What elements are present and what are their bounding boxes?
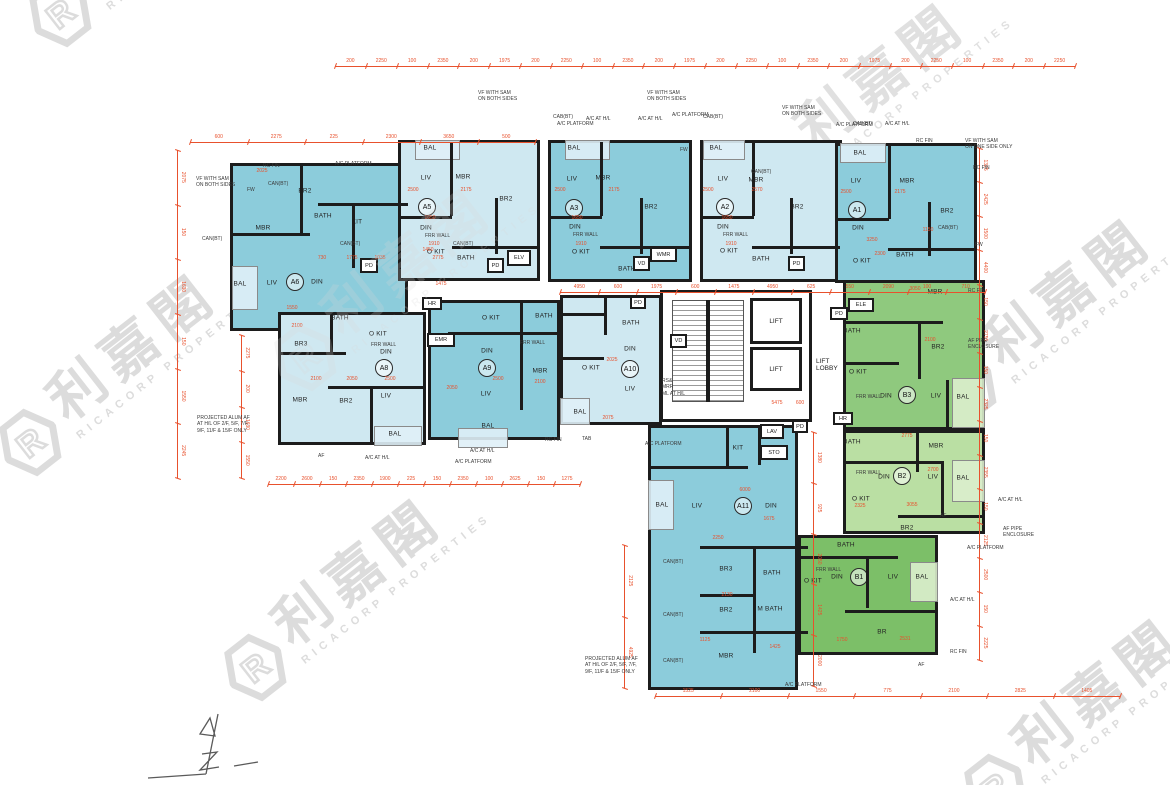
- dimension-value: 1035: [374, 255, 385, 261]
- room-label: MBR: [899, 178, 914, 185]
- room-label: BATH: [535, 313, 553, 320]
- dimension-value: 2100: [749, 688, 760, 694]
- service-box-pd: PD: [487, 258, 504, 273]
- dimension-value: 2275: [271, 134, 282, 140]
- room-label: MBR: [718, 653, 733, 660]
- dimension-value: 200: [346, 58, 354, 64]
- dimension-value: 200: [840, 58, 848, 64]
- dimension-value: 1550: [816, 688, 827, 694]
- dimension-tick: [239, 441, 245, 444]
- service-box-sto: STO: [760, 445, 788, 460]
- room-label: DIN: [624, 346, 636, 353]
- service-box-pd: PD: [630, 296, 646, 309]
- dimension-value: 600: [614, 284, 622, 290]
- dimension-value: 2500: [384, 376, 395, 382]
- room-label: BAL: [574, 409, 587, 416]
- unit-number-B3: B3: [898, 386, 916, 404]
- dimension-value: 1650: [424, 215, 435, 221]
- room-label: O KIT: [849, 369, 867, 376]
- room-label: KIT: [733, 445, 744, 452]
- room-label: MBR: [595, 175, 610, 182]
- annotation-label: CAN(BT): [202, 236, 222, 242]
- dimension-chain: 2002250100235020019752002250100235020019…: [335, 58, 1075, 68]
- watermark-text: 利嘉閣RICACORP PROPERTIES: [973, 185, 1170, 387]
- dimension-tick: [977, 522, 983, 525]
- room-label: BR2: [499, 196, 512, 203]
- unit-number-A5: A5: [418, 198, 436, 216]
- dimension-value: 1650: [571, 215, 582, 221]
- dimension-value: 2250: [1054, 58, 1065, 64]
- annotation-label: A/C AT H/L: [885, 121, 910, 127]
- dimension-tick: [239, 477, 245, 480]
- dimension-value: 2531: [899, 636, 910, 642]
- watermark-chinese: 利嘉閣: [1003, 585, 1170, 775]
- room-label: O KIT: [853, 258, 871, 265]
- annotation-label: CAN(BT): [663, 559, 683, 565]
- dimension-chain: 152521001550775210028251405: [655, 688, 1120, 698]
- dimension-value: 100: [778, 58, 786, 64]
- dimension-tick: [239, 334, 245, 337]
- dimension-value: 1550: [286, 305, 297, 311]
- dimension-value: 2100: [534, 379, 545, 385]
- wall-segment: [232, 233, 310, 236]
- dimension-value: 3650: [443, 134, 454, 140]
- dimension-value: 100: [963, 58, 971, 64]
- ricacorp-logo-icon: R: [212, 624, 299, 711]
- wall-segment: [600, 142, 603, 216]
- dimension-value: 200: [901, 58, 909, 64]
- dimension-tick: [811, 482, 817, 485]
- dimension-value: 1500: [982, 228, 988, 239]
- dimension-value: 200: [531, 58, 539, 64]
- annotation-label: FRR WALL: [573, 232, 598, 238]
- dimension-value: 1425: [769, 644, 780, 650]
- room-label: BAL: [424, 145, 437, 152]
- wall-segment: [752, 142, 755, 216]
- balcony-area: [232, 266, 258, 310]
- dimension-value: 1750: [836, 637, 847, 643]
- annotation-label: PROJECTED ALUM AF AT H/L OF 2/F, 5/F, 7/…: [585, 656, 638, 675]
- annotation-label: CAN(BT): [751, 169, 771, 175]
- dimension-value: 150: [982, 605, 988, 613]
- dimension-value: 2350: [807, 58, 818, 64]
- wall-segment: [753, 548, 756, 653]
- dimension-tick: [1074, 63, 1077, 69]
- dimension-value: 4950: [574, 284, 585, 290]
- annotation-label: VF WITH SAM ON BOTH SIDES: [196, 176, 235, 189]
- dimension-value: 200: [655, 58, 663, 64]
- annotation-label: VF WITH SAM ON BOTH SIDES: [782, 105, 821, 118]
- dimension-value: 2000: [816, 655, 822, 666]
- wall-segment: [888, 248, 975, 251]
- annotation-label: AF: [918, 662, 924, 668]
- dimension-chain: 1380925205014252000: [812, 432, 822, 686]
- dimension-tick: [175, 313, 181, 316]
- watermark-english: RICACORP PROPERTIES: [1010, 232, 1170, 387]
- dimension-value: 2355: [982, 467, 988, 478]
- room-label: BR2: [900, 525, 913, 532]
- room-label: MBR: [928, 443, 943, 450]
- balcony-area: [458, 428, 508, 448]
- dimension-tick: [175, 477, 181, 480]
- dimension-value: 775: [883, 688, 891, 694]
- annotation-label: RC FIN: [916, 138, 933, 144]
- dimension-value: 150: [982, 297, 988, 305]
- annotation-label: RC FIN: [950, 649, 967, 655]
- dimension-value: 600: [215, 134, 223, 140]
- dimension-value: 150: [982, 502, 988, 510]
- dimension-tick: [175, 204, 181, 207]
- dimension-value: 1675: [763, 516, 774, 522]
- annotation-label: A/C AT H/L: [950, 597, 975, 603]
- watermark-chinese: 利嘉閣: [263, 465, 484, 655]
- watermark-english: RICACORP PROPERTIES: [1040, 632, 1170, 785]
- dimension-line: [813, 432, 814, 686]
- annotation-label: CAN(BT): [268, 181, 288, 187]
- wall-segment: [835, 218, 889, 221]
- dimension-value: 200: [1025, 58, 1033, 64]
- annotation-label: CAN(BT): [340, 241, 360, 247]
- dimension-tick: [977, 181, 983, 184]
- wall-segment: [370, 388, 373, 443]
- dimension-tick: [175, 422, 181, 425]
- annotation-label: FRR WALL: [520, 340, 545, 346]
- dimension-value: 225: [407, 476, 415, 482]
- room-label: MBR: [255, 225, 270, 232]
- dimension-line: [655, 696, 1120, 697]
- ricacorp-logo-icon: R: [17, 0, 104, 57]
- annotation-label: RS& MRR ML AT H/L: [662, 378, 685, 397]
- room-label: LIV: [625, 386, 635, 393]
- dimension-value: 600: [796, 400, 804, 406]
- annotation-label: AF: [318, 453, 324, 459]
- watermark: R利嘉閣RICACORP PROPERTIES: [0, 240, 268, 486]
- service-box-vd: VD: [633, 256, 650, 271]
- room-label: BATH: [763, 570, 781, 577]
- wall-segment: [700, 631, 808, 634]
- dimension-value: 150: [180, 337, 186, 345]
- dimension-value: 150: [433, 476, 441, 482]
- dimension-value: 1975: [651, 284, 662, 290]
- room-label: MBR: [455, 174, 470, 181]
- service-box-emr: EMR: [427, 333, 455, 347]
- dimension-value: 150: [982, 434, 988, 442]
- dimension-tick: [977, 215, 983, 218]
- room-label: BR: [877, 629, 886, 636]
- dimension-value: 1910: [725, 241, 736, 247]
- room-label: BATH: [314, 213, 332, 220]
- dimension-value: 2775: [432, 255, 443, 261]
- dimension-value: 1975: [684, 58, 695, 64]
- dimension-tick: [811, 533, 817, 536]
- dimension-value: 2500: [407, 187, 418, 193]
- room-label: BAL: [957, 475, 970, 482]
- room-label: BR2: [719, 607, 732, 614]
- service-box-hr: HR: [833, 412, 853, 425]
- lift-lobby-label: LIFT LOBBY: [816, 358, 838, 373]
- wall-segment: [888, 145, 891, 219]
- dimension-value: 4400: [982, 262, 988, 273]
- annotation-label: VF WITH SAM ON BOTH SIDES: [478, 90, 517, 103]
- dimension-value: 730: [318, 255, 326, 261]
- annotation-label: A/C AT H/L: [470, 448, 495, 454]
- room-label: LIV: [421, 175, 431, 182]
- room-label: O KIT: [720, 248, 738, 255]
- dimension-line: [979, 148, 980, 660]
- dimension-value: 1910: [575, 241, 586, 247]
- dimension-value: 150: [982, 366, 988, 374]
- dimension-value: 2175: [460, 187, 471, 193]
- dimension-value: 2500: [982, 569, 988, 580]
- dimension-value: 2090: [883, 284, 894, 290]
- dimension-value: 1525: [683, 688, 694, 694]
- annotation-label: A/C AT H/L: [998, 497, 1023, 503]
- wall-segment: [648, 466, 748, 469]
- dimension-value: 1150: [923, 227, 934, 233]
- wall-segment: [560, 357, 604, 360]
- service-box-pd: PD: [792, 420, 808, 433]
- watermark-english: RICACORP PROPERTIES: [105, 0, 298, 13]
- dimension-value: 2250: [376, 58, 387, 64]
- annotation-label: A/C AT H/L: [638, 116, 663, 122]
- watermark-chinese: 利嘉閣: [38, 240, 259, 430]
- dimension-tick: [239, 406, 245, 409]
- dimension-value: 1975: [499, 58, 510, 64]
- wall-segment: [845, 610, 935, 613]
- annotation-label: VF WITH SAM ON ONE SIDE ONLY: [965, 138, 1012, 151]
- unit-number-A2: A2: [716, 198, 734, 216]
- room-label: LIV: [567, 176, 577, 183]
- lift-shaft-1: LIFT: [750, 298, 802, 344]
- dimension-value: 1975: [869, 58, 880, 64]
- ricacorp-logo-icon: R: [952, 744, 1039, 785]
- annotation-label: AF: [940, 513, 946, 519]
- wall-segment: [520, 356, 523, 410]
- dimension-value: 2250: [931, 58, 942, 64]
- watermark-chinese: 利嘉閣: [68, 0, 289, 1]
- unit-A11: [648, 425, 798, 690]
- dimension-value: 6000: [739, 487, 750, 493]
- unit-number-A9: A9: [478, 359, 496, 377]
- dimension-value: 550: [846, 284, 854, 290]
- wall-segment: [560, 313, 604, 316]
- room-label: O KIT: [852, 496, 870, 503]
- room-label: DIN: [569, 224, 581, 231]
- wall-segment: [916, 432, 919, 472]
- room-label: BR3: [719, 566, 732, 573]
- dimension-value: 2245: [180, 445, 186, 456]
- room-label: LIV: [888, 574, 898, 581]
- dimension-value: 150: [537, 476, 545, 482]
- dimension-value: 1425: [816, 604, 822, 615]
- dimension-tick: [175, 149, 181, 152]
- annotation-label: A/C PLATFORM: [335, 161, 372, 167]
- dimension-value: 2350: [622, 58, 633, 64]
- dimension-tick: [1119, 693, 1122, 699]
- dimension-value: 225: [330, 134, 338, 140]
- dimension-value: 2175: [608, 187, 619, 193]
- service-box-ele: ELE: [848, 298, 874, 312]
- dimension-value: 150: [329, 476, 337, 482]
- dimension-value: 2050: [346, 376, 357, 382]
- room-label: BAL: [656, 502, 669, 509]
- watermark-english: RICACORP PROPERTIES: [300, 512, 493, 667]
- wall-segment: [604, 295, 607, 335]
- room-label: MBR: [748, 177, 763, 184]
- wall-segment: [330, 312, 333, 354]
- dimension-value: 100: [923, 284, 931, 290]
- room-label: O KIT: [369, 331, 387, 338]
- lift-shaft-2: LIFT: [750, 347, 802, 391]
- dimension-value: 200: [244, 384, 250, 392]
- dimension-value: 2100: [924, 337, 935, 343]
- dimension-value: 1450: [422, 247, 433, 253]
- room-label: BATH: [622, 320, 640, 327]
- annotation-label: FRR WALL: [816, 567, 841, 573]
- service-box-vd: VD: [670, 334, 687, 348]
- watermark-text: 利嘉閣RICACORP PROPERTIES: [1003, 585, 1170, 785]
- wall-segment: [866, 558, 869, 608]
- dimension-tick: [977, 591, 983, 594]
- dimension-tick: [977, 488, 983, 491]
- annotation-label: RC FIN: [545, 437, 562, 443]
- dimension-value: 925: [816, 504, 822, 512]
- service-box-pd: PD: [830, 307, 848, 320]
- annotation-label: RC FIN: [973, 165, 990, 171]
- dimension-value: 2100: [291, 323, 302, 329]
- annotation-label: TAB: [582, 436, 591, 442]
- dimension-value: 2325: [854, 503, 865, 509]
- dimension-value: 625: [807, 284, 815, 290]
- dimension-value: 1475: [728, 284, 739, 290]
- unit-number-A1: A1: [848, 201, 866, 219]
- dimension-value: 1405: [1081, 688, 1092, 694]
- dimension-tick: [977, 386, 983, 389]
- dimension-value: 2130: [721, 592, 732, 598]
- dimension-value: 2600: [301, 476, 312, 482]
- room-label: BAL: [482, 423, 495, 430]
- room-label: BAL: [916, 574, 929, 581]
- room-label: LIV: [381, 393, 391, 400]
- watermark: R利嘉閣RICACORP PROPERTIES: [206, 465, 493, 711]
- annotation-label: AF PIPE ENCLOSURE: [1003, 526, 1034, 539]
- dimension-tick: [622, 687, 628, 690]
- room-label: BATH: [843, 439, 861, 446]
- dimension-value: 2325: [982, 398, 988, 409]
- dimension-value: 1650: [721, 215, 732, 221]
- room-label: BR2: [339, 398, 352, 405]
- room-label: BATH: [837, 542, 855, 549]
- annotation-label: CAN(BT): [663, 612, 683, 618]
- dimension-chain: 227520016301550: [240, 335, 250, 478]
- dimension-value: 2350: [457, 476, 468, 482]
- room-label: BAL: [389, 431, 402, 438]
- annotation-label: FRR WALL: [371, 342, 396, 348]
- dimension-value: 100: [485, 476, 493, 482]
- room-label: DIN: [765, 503, 777, 510]
- wall-segment: [941, 461, 944, 517]
- dimension-tick: [811, 583, 817, 586]
- dimension-value: 2500: [840, 189, 851, 195]
- dimension-tick: [811, 634, 817, 637]
- wall-segment: [946, 380, 949, 428]
- service-box-wmr: WMR: [650, 247, 677, 262]
- dimension-value: 200: [716, 58, 724, 64]
- dimension-value: 2075: [602, 415, 613, 421]
- room-label: BATH: [843, 328, 861, 335]
- svg-text:R: R: [10, 421, 53, 466]
- dimension-value: 2025: [606, 357, 617, 363]
- room-label: LIV: [692, 503, 702, 510]
- annotation-label: A/C PLATFORM: [645, 441, 682, 447]
- wall-segment: [318, 203, 408, 206]
- dimension-tick: [579, 481, 582, 487]
- room-label: LIV: [481, 391, 491, 398]
- annotation-label: CAN(BT): [453, 241, 473, 247]
- dimension-value: 2700: [927, 467, 938, 473]
- dimension-chain: 2200260015023501900225150235010026251501…: [268, 476, 580, 486]
- room-label: MBR: [532, 368, 547, 375]
- wall-segment: [843, 362, 899, 365]
- dimension-value: 2275: [244, 347, 250, 358]
- dimension-value: 2570: [751, 187, 762, 193]
- dimension-tick: [239, 370, 245, 373]
- dimension-tick: [622, 616, 628, 619]
- dimension-tick: [175, 258, 181, 261]
- dimension-value: 2425: [982, 194, 988, 205]
- room-label: BR2: [644, 204, 657, 211]
- unit-number-A11: A11: [734, 497, 752, 515]
- dimension-value: 500: [502, 134, 510, 140]
- watermark-text: 利嘉閣RICACORP PROPERTIES: [263, 465, 493, 667]
- dimension-value: 2500: [492, 376, 503, 382]
- room-label: DIN: [311, 279, 323, 286]
- annotation-label: A/C AT H/L: [586, 116, 611, 122]
- ricacorp-logo-icon: R: [0, 399, 74, 486]
- annotation-label: VF WITH SAM ON BOTH SIDES: [647, 90, 686, 103]
- dimension-line: [560, 292, 985, 293]
- dimension-value: 2200: [275, 476, 286, 482]
- annotation-label: A/C PLATFORM: [785, 682, 822, 688]
- wall-segment: [752, 246, 840, 249]
- dimension-value: 2350: [992, 58, 1003, 64]
- room-label: DIN: [831, 574, 843, 581]
- annotation-label: RC FIN: [263, 163, 280, 169]
- service-box-elv: ELV: [507, 250, 531, 266]
- room-label: LIV: [851, 178, 861, 185]
- watermark: R利嘉閣RICACORP PROPERTIES: [11, 0, 298, 57]
- room-label: BATH: [896, 252, 914, 259]
- dimension-value: 4950: [767, 284, 778, 290]
- annotation-label: A/C PLATFORM: [455, 459, 492, 465]
- dimension-value: 1550: [180, 390, 186, 401]
- wall-segment: [328, 386, 426, 389]
- annotation-label: CAN(BT): [663, 658, 683, 664]
- dimension-value: 1900: [379, 476, 390, 482]
- wall-segment: [278, 352, 346, 355]
- service-box-lav: LAV: [760, 424, 784, 439]
- watermark-text: 利嘉閣RICACORP PROPERTIES: [68, 0, 298, 13]
- wall-segment: [843, 461, 943, 464]
- annotation-label: FRR WALL: [723, 232, 748, 238]
- room-label: DIN: [717, 224, 729, 231]
- dimension-value: 600: [691, 284, 699, 290]
- room-label: DIN: [852, 225, 864, 232]
- dimension-value: 2500: [554, 187, 565, 193]
- annotation-label: RC FIN: [968, 288, 985, 294]
- room-label: DIN: [880, 393, 892, 400]
- room-label: LIV: [931, 393, 941, 400]
